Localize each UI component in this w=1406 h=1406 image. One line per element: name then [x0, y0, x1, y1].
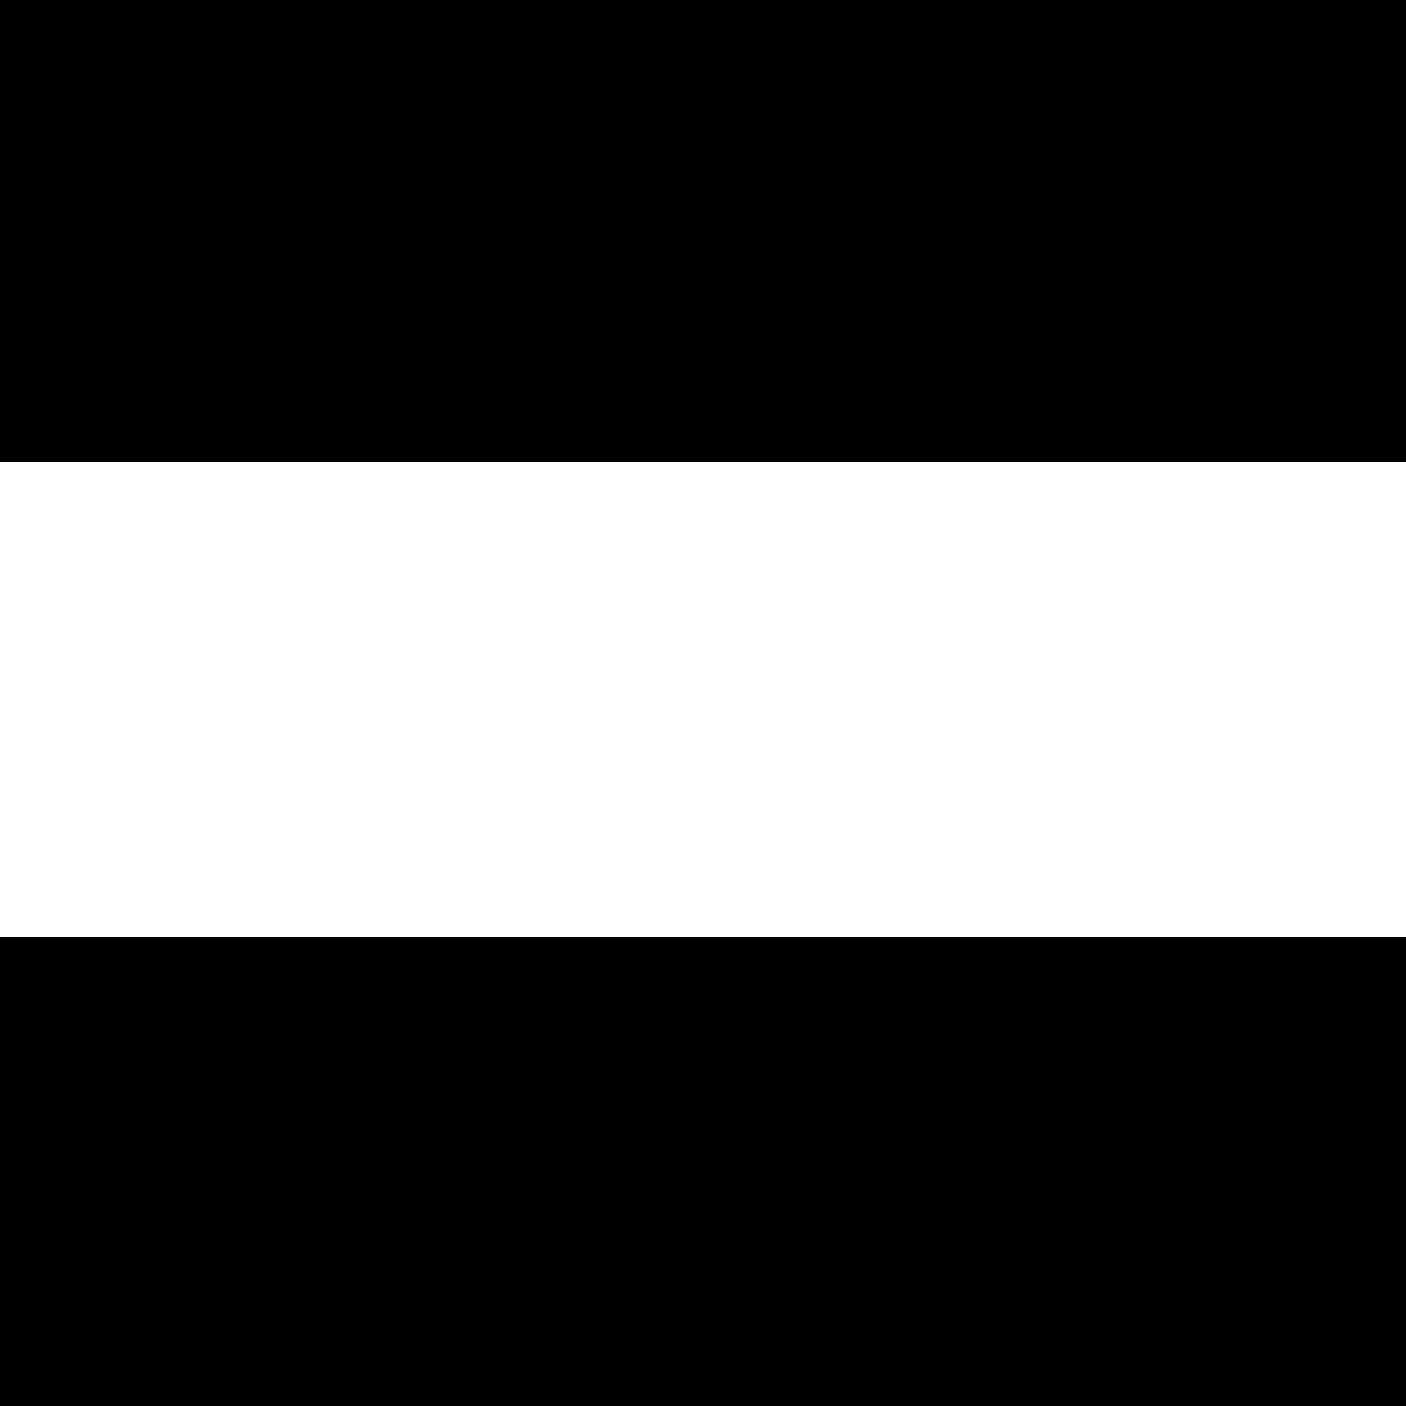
letterbox-bottom [0, 937, 1406, 1406]
screenshot-stage: e b [0, 0, 1406, 1406]
content-panel: e b [0, 462, 1406, 937]
letterbox-top [0, 0, 1406, 462]
